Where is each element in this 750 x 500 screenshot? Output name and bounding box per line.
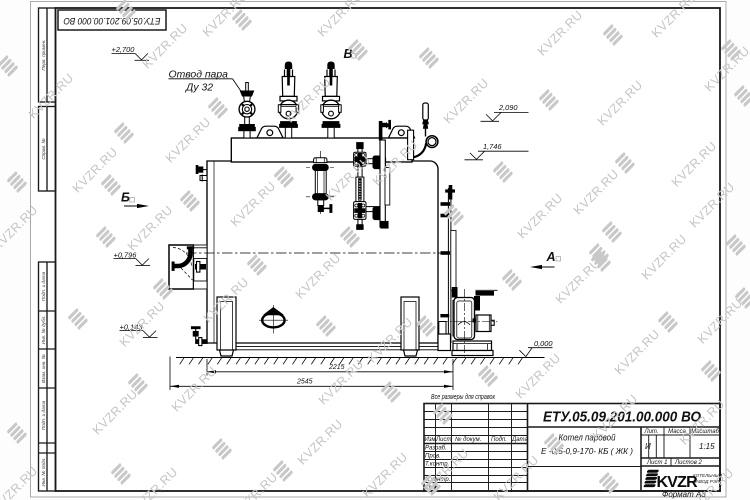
svg-text:Взам. инв. №: Взам. инв. № [41,354,46,383]
svg-text:+2,700: +2,700 [112,45,136,54]
svg-text:Подп.: Подп. [491,437,507,443]
svg-text:Разраб.: Разраб. [425,446,447,452]
svg-text:1,746: 1,746 [483,142,502,151]
svg-text:Лист: Лист [435,437,451,443]
svg-text:Справ. №: Справ. № [41,138,46,159]
svg-text:Лит.: Лит. [643,429,658,435]
svg-text:2,090: 2,090 [498,103,518,112]
svg-text:Ду 32: Ду 32 [185,83,213,94]
svg-text:Инв. № подл.: Инв. № подл. [41,457,46,486]
svg-text:И: И [645,442,651,451]
svg-text:А: А [546,250,556,264]
svg-text:ЕТУ.05.09.201.00.000 ВО: ЕТУ.05.09.201.00.000 ВО [63,16,160,26]
svg-text:Подп. и дата: Подп. и дата [41,271,46,301]
svg-text:№ докум.: № докум. [455,436,481,443]
svg-text:2215: 2215 [328,364,345,371]
svg-text:0,000: 0,000 [534,339,553,348]
svg-text:2545: 2545 [296,378,313,385]
svg-text:Подп. и дата: Подп. и дата [41,400,46,430]
svg-text:Инв. № дубл.: Инв. № дубл. [41,316,46,345]
svg-text:1:15: 1:15 [699,442,715,451]
svg-text:Б: Б [121,191,130,205]
svg-text:Перв. примен.: Перв. примен. [41,39,46,70]
svg-text:KVZR: KVZR [657,474,699,491]
svg-text:Все размеры для справок: Все размеры для справок [431,393,496,401]
svg-text:Лист 1: Лист 1 [646,460,667,466]
svg-text:Листов 2: Листов 2 [674,460,703,466]
svg-text:Пров.: Пров. [425,453,441,459]
svg-text:Дата: Дата [511,437,528,443]
